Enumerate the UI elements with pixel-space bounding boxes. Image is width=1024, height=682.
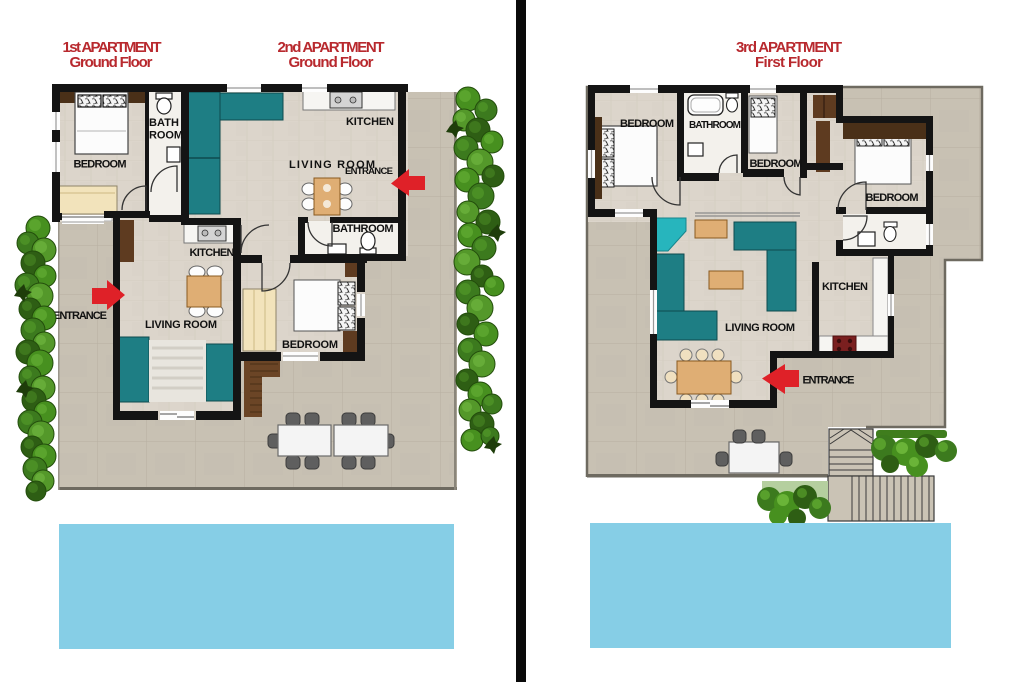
svg-text:LIVING ROOM: LIVING ROOM — [725, 322, 795, 334]
svg-text:ROOM: ROOM — [149, 130, 183, 142]
svg-text:BEDROOM: BEDROOM — [620, 118, 674, 130]
svg-text:ENTRANCE: ENTRANCE — [803, 375, 855, 387]
svg-text:ENTRANCE: ENTRANCE — [345, 166, 393, 177]
svg-text:BATHROOM: BATHROOM — [689, 120, 741, 131]
svg-text:BEDROOM: BEDROOM — [750, 158, 803, 170]
svg-text:BEDROOM: BEDROOM — [282, 339, 338, 351]
svg-text:KITCHEN: KITCHEN — [346, 116, 394, 128]
svg-text:KITCHEN: KITCHEN — [822, 281, 868, 293]
svg-text:ENTRANCE: ENTRANCE — [53, 310, 107, 322]
svg-text:BATHROOM: BATHROOM — [333, 223, 394, 235]
svg-text:BATH: BATH — [149, 117, 179, 129]
svg-text:First Floor: First Floor — [755, 54, 823, 71]
svg-text:BEDROOM: BEDROOM — [74, 159, 127, 171]
svg-text:LIVING ROOM: LIVING ROOM — [145, 319, 217, 331]
svg-text:BEDROOM: BEDROOM — [866, 192, 919, 204]
svg-text:KITCHEN: KITCHEN — [190, 247, 235, 259]
svg-text:Ground Floor: Ground Floor — [70, 54, 153, 71]
svg-text:Ground Floor: Ground Floor — [289, 54, 374, 71]
